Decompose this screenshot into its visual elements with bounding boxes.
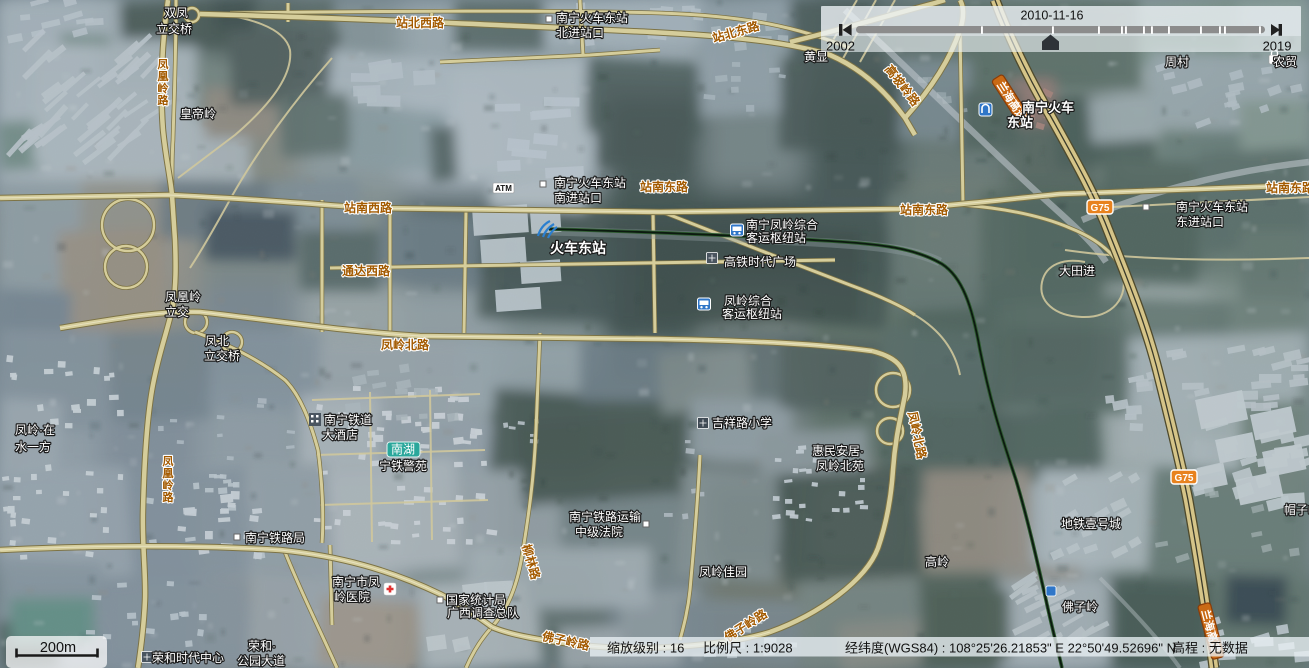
svg-text:站南东路: 站南东路 (900, 202, 949, 217)
svg-text:南宁凤岭综合: 南宁凤岭综合 (746, 217, 818, 232)
svg-text:大田进: 大田进 (1059, 264, 1095, 278)
svg-text:宁铁警苑: 宁铁警苑 (379, 458, 427, 473)
svg-text:凤: 凤 (158, 58, 169, 71)
svg-text:农贸: 农贸 (1273, 55, 1297, 69)
svg-text:岭: 岭 (163, 478, 174, 492)
svg-text:2019: 2019 (1263, 39, 1292, 54)
svg-text:东进站口: 东进站口 (1176, 215, 1224, 229)
svg-text:水一方: 水一方 (15, 439, 51, 454)
svg-text:公园大道: 公园大道 (237, 654, 285, 668)
svg-text:南宁铁道: 南宁铁道 (324, 412, 372, 427)
svg-text:荣和时代中心: 荣和时代中心 (152, 650, 224, 665)
svg-text:惠民安居·: 惠民安居· (812, 443, 864, 458)
svg-text:凤岭北苑: 凤岭北苑 (816, 459, 864, 473)
svg-text:凤北: 凤北 (205, 334, 229, 348)
svg-text:国家统计局: 国家统计局 (446, 592, 506, 607)
svg-text:路: 路 (163, 490, 175, 504)
svg-text:中级法院: 中级法院 (575, 524, 623, 539)
svg-text:岭: 岭 (158, 81, 169, 95)
svg-text:帽子岭: 帽子岭 (1284, 502, 1309, 517)
svg-text:南宁火车东站: 南宁火车东站 (554, 175, 626, 190)
svg-text:南进站口: 南进站口 (554, 190, 602, 205)
svg-text:立交桥: 立交桥 (156, 21, 192, 36)
svg-text:高铁时代广场: 高铁时代广场 (724, 254, 796, 269)
svg-text:200m: 200m (40, 640, 76, 656)
svg-text:路: 路 (158, 93, 170, 107)
svg-text:吉祥路小学: 吉祥路小学 (712, 415, 772, 430)
svg-text:火车东站: 火车东站 (550, 240, 606, 256)
svg-text:南宁火车东站: 南宁火车东站 (556, 10, 628, 25)
svg-text:站南东路: 站南东路 (640, 179, 689, 194)
svg-text:站北西路: 站北西路 (396, 15, 445, 30)
svg-text:凤岭·在: 凤岭·在 (15, 423, 55, 437)
svg-text:客运枢纽站: 客运枢纽站 (722, 306, 782, 321)
svg-text:南宁火车: 南宁火车 (1022, 100, 1074, 115)
svg-text:立交: 立交 (165, 304, 189, 319)
svg-text:凤岭北路: 凤岭北路 (381, 337, 430, 352)
svg-text:高岭: 高岭 (925, 554, 949, 569)
svg-text:佛子岭: 佛子岭 (1062, 600, 1098, 614)
svg-text:2010-11-16: 2010-11-16 (1020, 9, 1083, 23)
svg-text:皇帝岭: 皇帝岭 (180, 106, 216, 121)
svg-text:经纬度(WGS84) : 108°25'26.21853": 经纬度(WGS84) : 108°25'26.21853" E 22°50'49… (845, 641, 1176, 656)
svg-text:北进站口: 北进站口 (556, 26, 604, 40)
svg-text:凤岭综合: 凤岭综合 (724, 293, 772, 308)
svg-text:南宁铁路运输: 南宁铁路运输 (569, 509, 641, 524)
svg-text:南湖: 南湖 (391, 442, 415, 457)
svg-text:凰: 凰 (158, 70, 169, 83)
svg-text:岭医院: 岭医院 (334, 590, 370, 604)
svg-text:站南东路: 站南东路 (1266, 180, 1309, 195)
svg-text:大酒店: 大酒店 (322, 428, 358, 442)
svg-text:荣和·: 荣和· (248, 639, 276, 653)
svg-text:地铁壹号城: 地铁壹号城 (1061, 517, 1121, 531)
svg-text:凤岭佳园: 凤岭佳园 (699, 565, 747, 579)
svg-text:双凤: 双凤 (164, 6, 188, 20)
svg-text:凤凰岭: 凤凰岭 (165, 290, 201, 304)
svg-text:凰: 凰 (163, 467, 174, 480)
svg-text:站南西路: 站南西路 (344, 200, 393, 215)
svg-text:凤: 凤 (163, 455, 174, 468)
svg-text:南宁火车东站: 南宁火车东站 (1176, 199, 1248, 214)
svg-text:G75: G75 (1091, 203, 1110, 214)
svg-text:东站: 东站 (1007, 115, 1033, 130)
svg-text:周村: 周村 (1165, 55, 1189, 69)
svg-text:2002: 2002 (826, 39, 855, 54)
svg-text:通达西路: 通达西路 (342, 263, 391, 278)
svg-text:G75: G75 (1175, 473, 1194, 484)
svg-text:比例尺 : 1:9028: 比例尺 : 1:9028 (703, 641, 793, 656)
svg-text:广西调查总队: 广西调查总队 (447, 605, 519, 620)
svg-text:南宁市凤: 南宁市凤 (332, 574, 380, 589)
svg-text:南宁铁路局: 南宁铁路局 (245, 530, 305, 545)
svg-text:缩放级别 : 16: 缩放级别 : 16 (607, 641, 684, 656)
svg-text:高程 : 无数据: 高程 : 无数据 (1172, 641, 1248, 656)
svg-text:客运枢纽站: 客运枢纽站 (746, 230, 806, 245)
svg-text:ATM: ATM (495, 184, 512, 193)
svg-text:黄显: 黄显 (804, 50, 828, 64)
svg-text:立交桥: 立交桥 (204, 348, 240, 363)
